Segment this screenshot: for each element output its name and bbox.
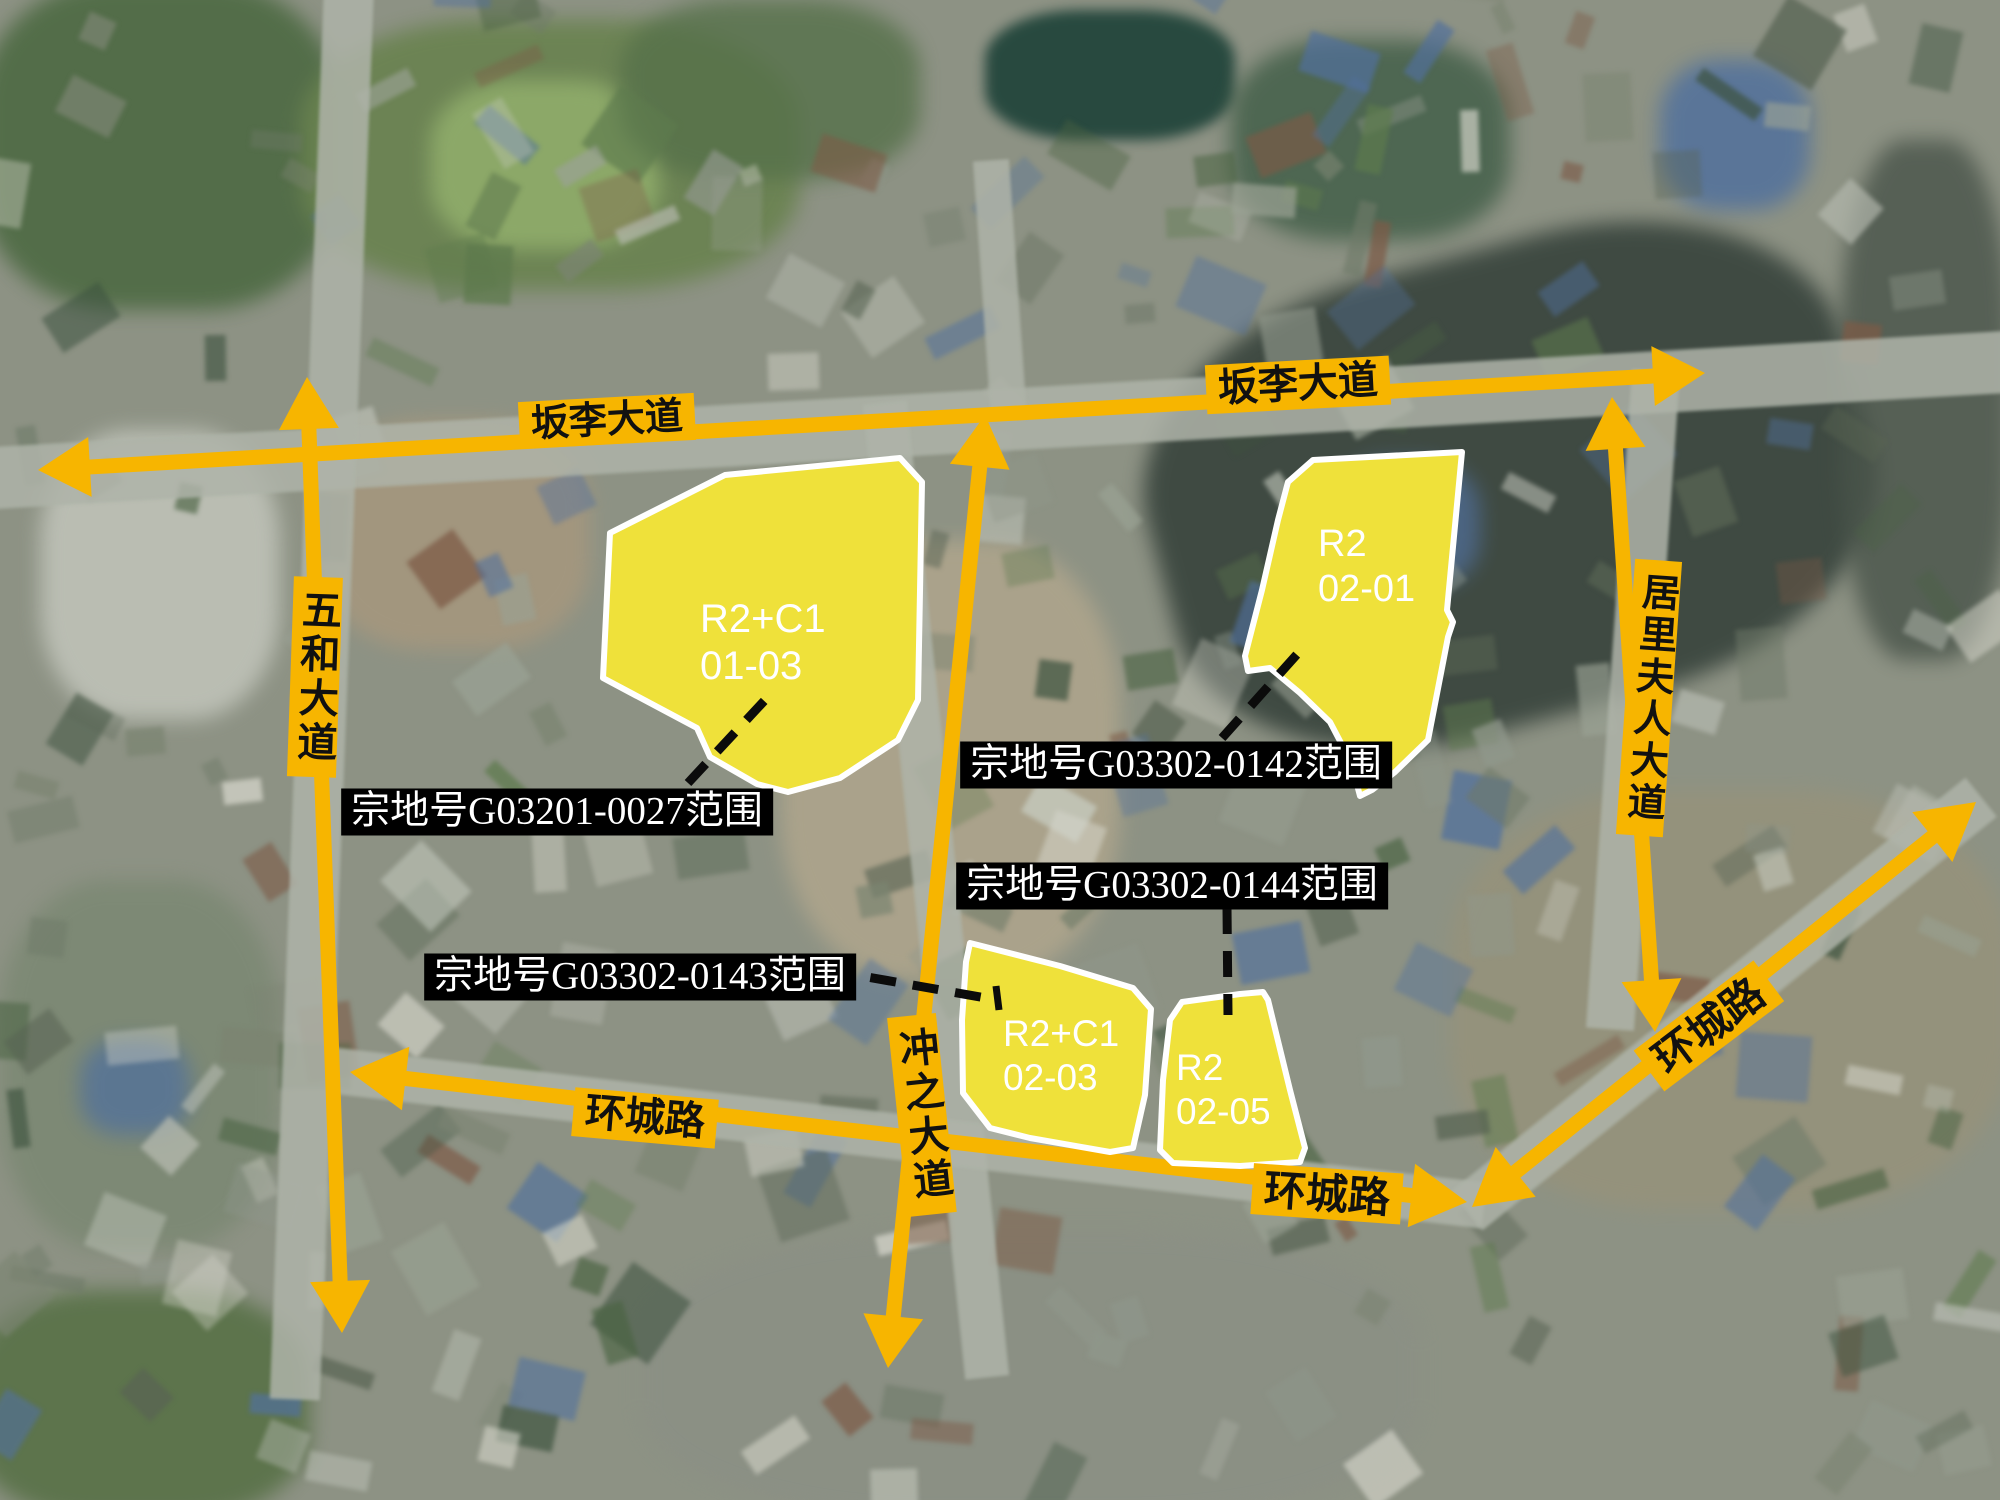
- callout-G03302-0143: 宗地号G03302-0143范围: [424, 954, 856, 1001]
- road-label-wuhe: 五和大道: [287, 576, 343, 778]
- road-label-chongzhi: 冲之大道: [887, 1013, 957, 1217]
- road-label-huancheng-west: 环城路: [571, 1087, 719, 1149]
- parcel-R2C1-01-03-label: R2+C101-03: [700, 596, 826, 690]
- road-label-juli: 居里夫人大道: [1616, 559, 1682, 838]
- road-label-banli-east: 坂李大道: [1205, 356, 1391, 415]
- annotation-labels: R2+C101-03R202-01R2+C102-03R202-05宗地号G03…: [0, 0, 2000, 1500]
- callout-G03302-0142: 宗地号G03302-0142范围: [960, 742, 1392, 789]
- callout-G03201-0027: 宗地号G03201-0027范围: [341, 789, 773, 836]
- road-label-banli-west: 坂李大道: [518, 393, 696, 449]
- parcel-R2-02-01-label: R202-01: [1318, 522, 1415, 612]
- road-label-huancheng-south: 环城路: [1250, 1163, 1403, 1225]
- parcel-R2-02-05-label: R202-05: [1176, 1046, 1271, 1133]
- road-label-huancheng-east: 环城路: [1634, 960, 1785, 1091]
- callout-G03302-0144: 宗地号G03302-0144范围: [956, 863, 1388, 910]
- satellite-map: R2+C101-03R202-01R2+C102-03R202-05宗地号G03…: [0, 0, 2000, 1500]
- parcel-R2C1-02-03-label: R2+C102-03: [1003, 1012, 1119, 1099]
